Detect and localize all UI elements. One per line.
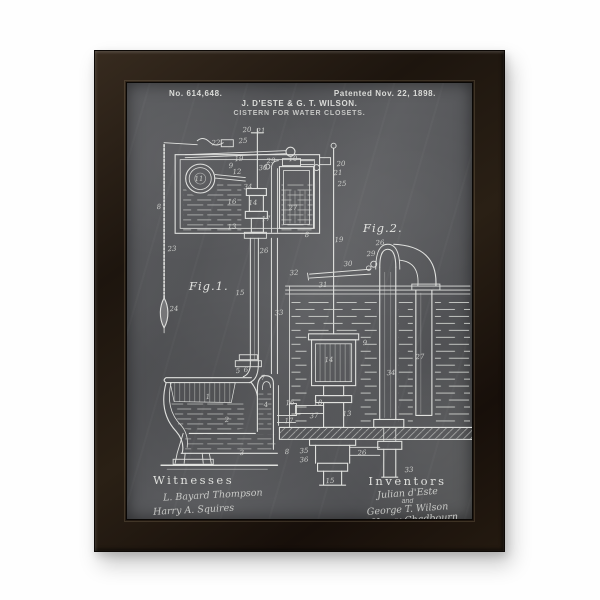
fig2-shelf: [279, 427, 472, 439]
toilet-bowl: [161, 376, 278, 470]
witnesses-block: Witnesses L. Bayard Thompson Harry A. Sq…: [153, 473, 263, 515]
patent-print: No. 614,648. Patented Nov. 22, 1898. J. …: [127, 83, 472, 519]
wall-background: No. 614,648. Patented Nov. 22, 1898. J. …: [0, 0, 600, 600]
flush-pipes: [235, 238, 277, 382]
picture-frame: No. 614,648. Patented Nov. 22, 1898. J. …: [94, 50, 505, 552]
figure1-label: Fig.1.: [189, 279, 229, 293]
fig2-cistern: [285, 286, 470, 427]
patent-drawing: [127, 83, 472, 519]
witnesses-heading: Witnesses: [153, 473, 263, 487]
patent-inventor-names: J. D'ESTE & G. T. WILSON.: [127, 99, 472, 108]
inventors-block: Inventors Julian d'Este and George T. Wi…: [357, 474, 458, 519]
patent-date: Patented Nov. 22, 1898.: [334, 89, 436, 98]
figure2-label: Fig.2.: [363, 221, 403, 235]
patent-number: No. 614,648.: [169, 89, 222, 98]
float-arm: [308, 269, 371, 280]
pull-handle: [160, 298, 168, 328]
patent-title: CISTERN FOR WATER CLOSETS.: [127, 110, 472, 117]
